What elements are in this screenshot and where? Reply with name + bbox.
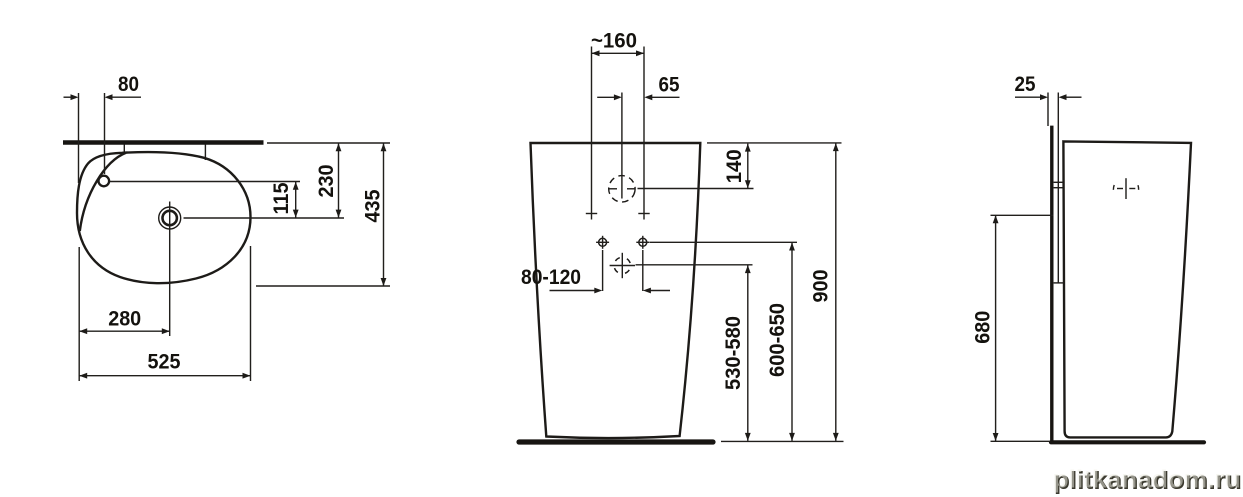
svg-text:280: 280 [108, 307, 141, 331]
svg-text:230: 230 [314, 164, 338, 197]
svg-text:530-580: 530-580 [721, 316, 745, 390]
svg-text:80: 80 [118, 72, 139, 96]
svg-text:600-650: 600-650 [765, 303, 789, 377]
svg-text:115: 115 [269, 182, 293, 214]
svg-text:plitkanadom.ru: plitkanadom.ru [1053, 466, 1241, 494]
svg-text:435: 435 [361, 189, 385, 222]
svg-text:~160: ~160 [591, 29, 637, 53]
svg-text:25: 25 [1015, 72, 1036, 96]
svg-text:525: 525 [148, 350, 181, 374]
svg-text:80-120: 80-120 [521, 265, 581, 289]
svg-text:65: 65 [659, 73, 680, 97]
svg-text:680: 680 [971, 311, 995, 344]
svg-text:140: 140 [722, 149, 746, 183]
svg-text:900: 900 [809, 269, 833, 302]
